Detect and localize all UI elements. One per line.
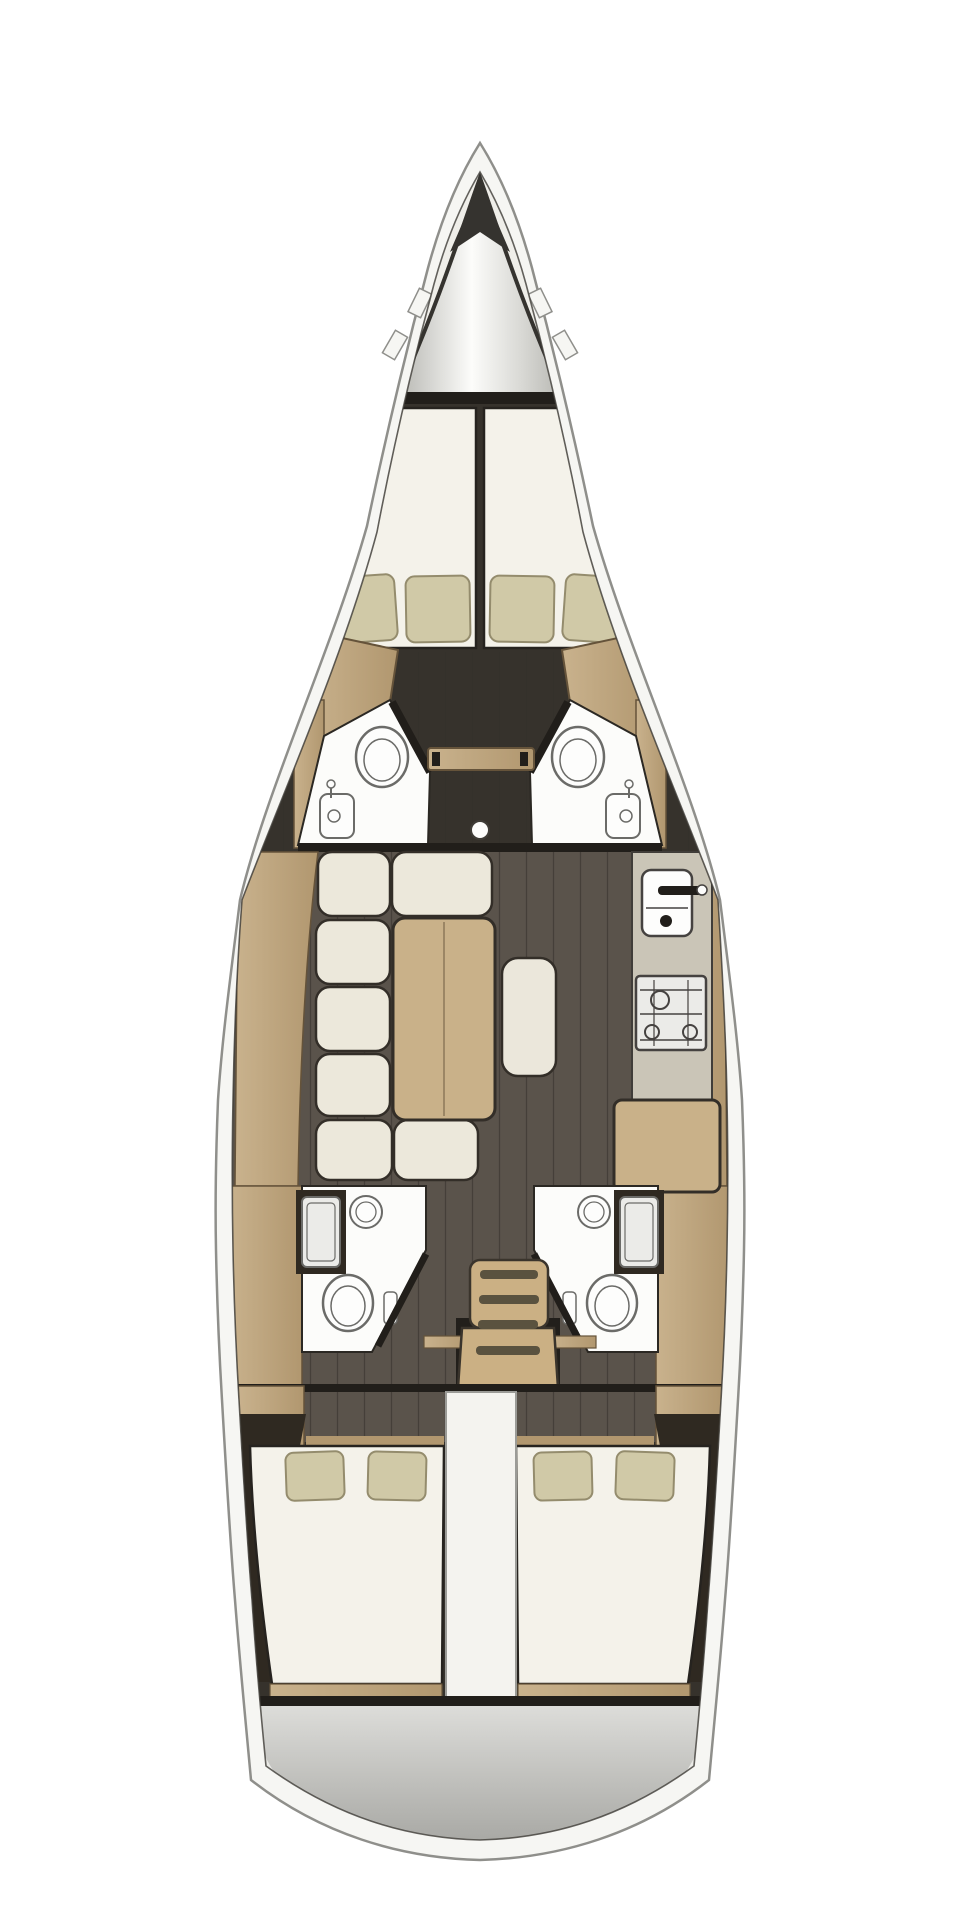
galley [632,852,712,1102]
stairs-ledge-starboard [550,1336,596,1348]
corridor-latch-port [432,752,440,766]
shower-pan [302,1197,340,1267]
berth-foot-board [518,1684,690,1698]
faucet-knob [625,780,633,788]
faucet-knob [327,780,335,788]
aft-cabin-port [238,1386,446,1698]
chainplate-notch-starboard-lower [552,330,577,360]
settee-cushion [316,920,390,984]
aft-bulkhead [236,1384,724,1392]
side-deck-starboard-aft [656,1186,730,1400]
aft-cabin-starboard [514,1386,722,1698]
galley-sink-control [660,915,672,927]
chainplate-notch-port-lower [382,330,407,360]
settee-cushion [316,987,390,1051]
side-deck-port-aft [228,1186,302,1400]
pillow [285,1451,345,1501]
berth-foot-board [270,1684,442,1698]
round-sink [578,1196,610,1228]
berth-head-sill [306,1436,444,1446]
stern-bulkhead [248,1696,712,1706]
stair-tread-slot [476,1346,540,1355]
galley-stove [636,976,706,1050]
interior [215,158,745,1840]
stair-tread-slot [480,1270,538,1279]
pillow [489,575,554,642]
stair-tread-slot [478,1320,538,1329]
yacht-floorplan [0,0,959,1919]
ottoman-seat [502,958,556,1076]
pillow [615,1451,675,1501]
stairs-lower [458,1328,558,1388]
mast-foot [471,821,489,839]
corridor-crossbeam [428,748,534,770]
saloon-bulkhead [298,843,662,852]
galley-faucet-knob [697,885,707,895]
engine-compartment-cover [446,1392,516,1698]
floorplan-canvas [0,0,959,1919]
sink [320,794,354,838]
settee-cushion [316,1120,392,1180]
settee-cushion [392,852,492,916]
cabin-door-floor-planks [302,1392,446,1442]
sink [606,794,640,838]
round-sink [350,1196,382,1228]
anchor-locker [350,178,610,404]
stair-tread-slot [479,1295,539,1304]
pillow [405,575,470,642]
chart-table [614,1100,720,1192]
corridor-latch-starboard [520,752,528,766]
settee-cushion [318,852,390,916]
cabin-door-floor-planks [514,1392,658,1442]
pillow [533,1451,592,1501]
settee-cushion [394,1120,478,1180]
bow-bulkhead [350,392,610,404]
pillow [367,1451,426,1501]
berth-head-sill [516,1436,654,1446]
settee-cushion [316,1054,390,1116]
shower-pan [620,1197,658,1267]
